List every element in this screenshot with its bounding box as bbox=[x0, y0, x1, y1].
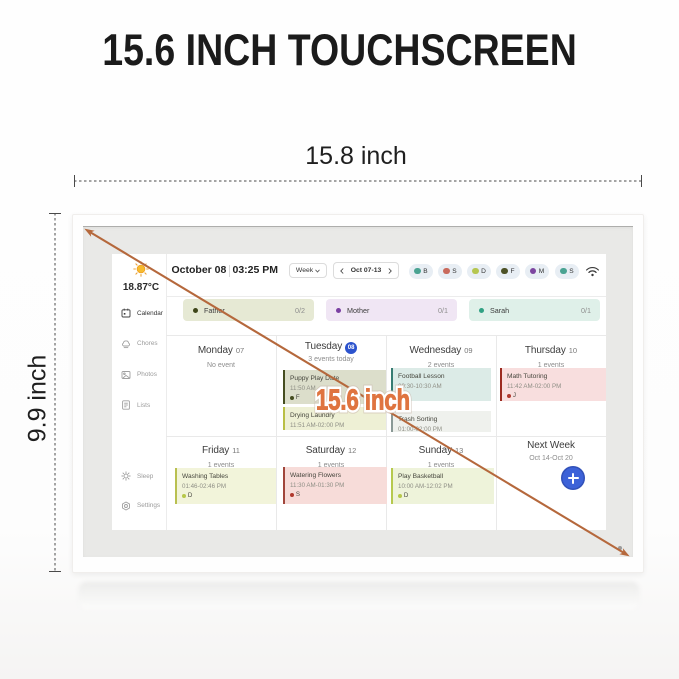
svg-text:15.6 inch: 15.6 inch bbox=[316, 385, 410, 417]
